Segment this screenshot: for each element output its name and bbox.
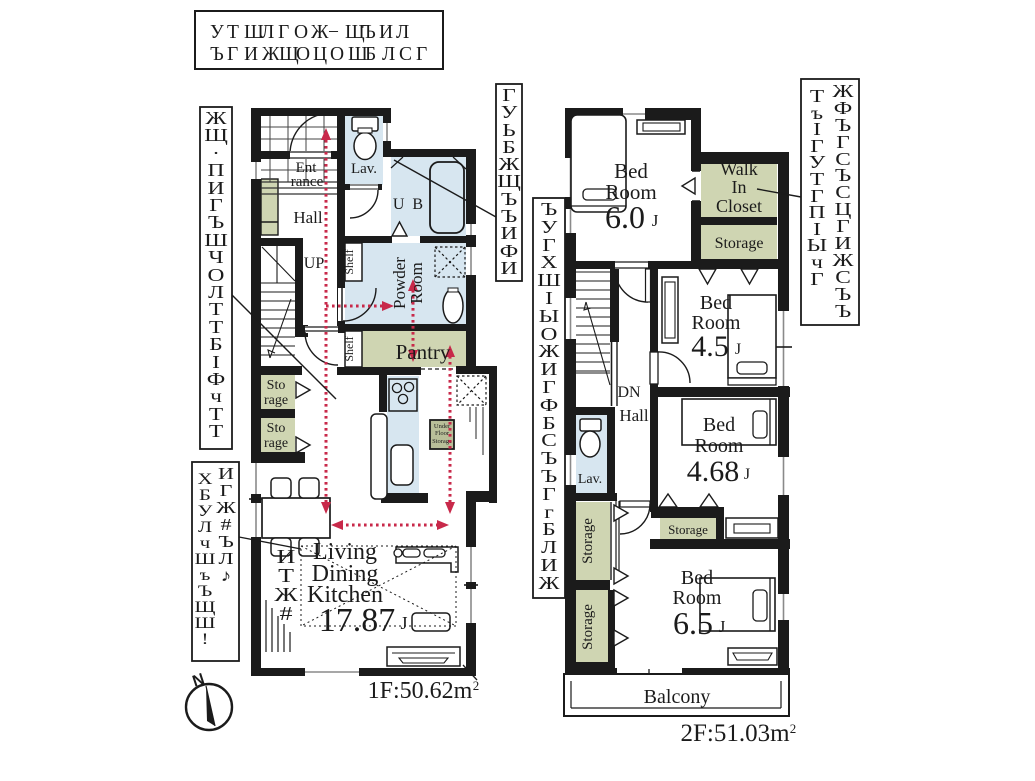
svg-text:Room: Room [407, 262, 426, 304]
svg-text:Hall: Hall [619, 406, 649, 425]
svg-text:Г: Г [810, 269, 824, 290]
svg-text:J: J [652, 211, 659, 230]
svg-text:Closet: Closet [716, 196, 762, 216]
svg-text:Under: Under [434, 423, 451, 430]
svg-text:Shelf: Shelf [342, 249, 356, 274]
svg-text:J: J [400, 613, 407, 633]
svg-text:1F:50.62m: 1F:50.62m [368, 678, 473, 704]
svg-text:♪: ♪ [220, 566, 231, 585]
svg-text:UP: UP [304, 255, 325, 272]
svg-text:17.87: 17.87 [319, 602, 396, 639]
svg-text:Т: Т [209, 421, 224, 442]
svg-text:rage: rage [264, 436, 288, 451]
svg-text:rance: rance [291, 174, 324, 190]
svg-text:6.5: 6.5 [673, 605, 713, 641]
svg-text:Ъ: Ъ [835, 301, 852, 322]
svg-text:Walk: Walk [720, 159, 758, 179]
svg-text:Lav.: Lav. [578, 472, 602, 487]
svg-text:Shelf: Shelf [342, 336, 356, 361]
svg-text:Bed: Bed [703, 414, 735, 436]
svg-text:Storage: Storage [580, 518, 596, 564]
svg-text:2F:51.03m: 2F:51.03m [680, 720, 790, 747]
svg-text:Bed: Bed [700, 292, 732, 314]
svg-text:Sto: Sto [267, 378, 286, 393]
svg-text:6.0: 6.0 [605, 199, 645, 235]
svg-text:2: 2 [790, 721, 797, 736]
svg-text:Lav.: Lav. [351, 161, 377, 177]
svg-text:U B: U B [393, 196, 425, 213]
svg-text:#: # [280, 603, 293, 625]
svg-text:Bed: Bed [681, 567, 713, 589]
svg-text:Sto: Sto [267, 421, 286, 436]
svg-text:Ж: Ж [539, 573, 560, 594]
svg-text:J: J [735, 341, 741, 358]
svg-text:Room: Room [695, 435, 744, 457]
svg-text:И: И [501, 258, 518, 279]
svg-text:J: J [744, 466, 750, 483]
svg-text:!: ! [202, 630, 209, 648]
svg-text:Storage: Storage [580, 604, 596, 650]
svg-text:Pantry: Pantry [396, 340, 451, 364]
svg-text:4.5: 4.5 [691, 330, 729, 363]
svg-text:In: In [732, 177, 747, 197]
svg-text:rage: rage [264, 393, 288, 408]
svg-text:J: J [719, 617, 726, 636]
svg-text:Balcony: Balcony [644, 686, 711, 708]
svg-text:Storage: Storage [715, 235, 764, 252]
svg-text:2: 2 [473, 678, 480, 693]
svg-text:Hall: Hall [293, 208, 323, 227]
svg-text:DN: DN [617, 384, 641, 401]
svg-text:Floor: Floor [435, 430, 450, 437]
svg-text:4.68: 4.68 [687, 455, 740, 488]
svg-text:Storage: Storage [668, 522, 708, 537]
